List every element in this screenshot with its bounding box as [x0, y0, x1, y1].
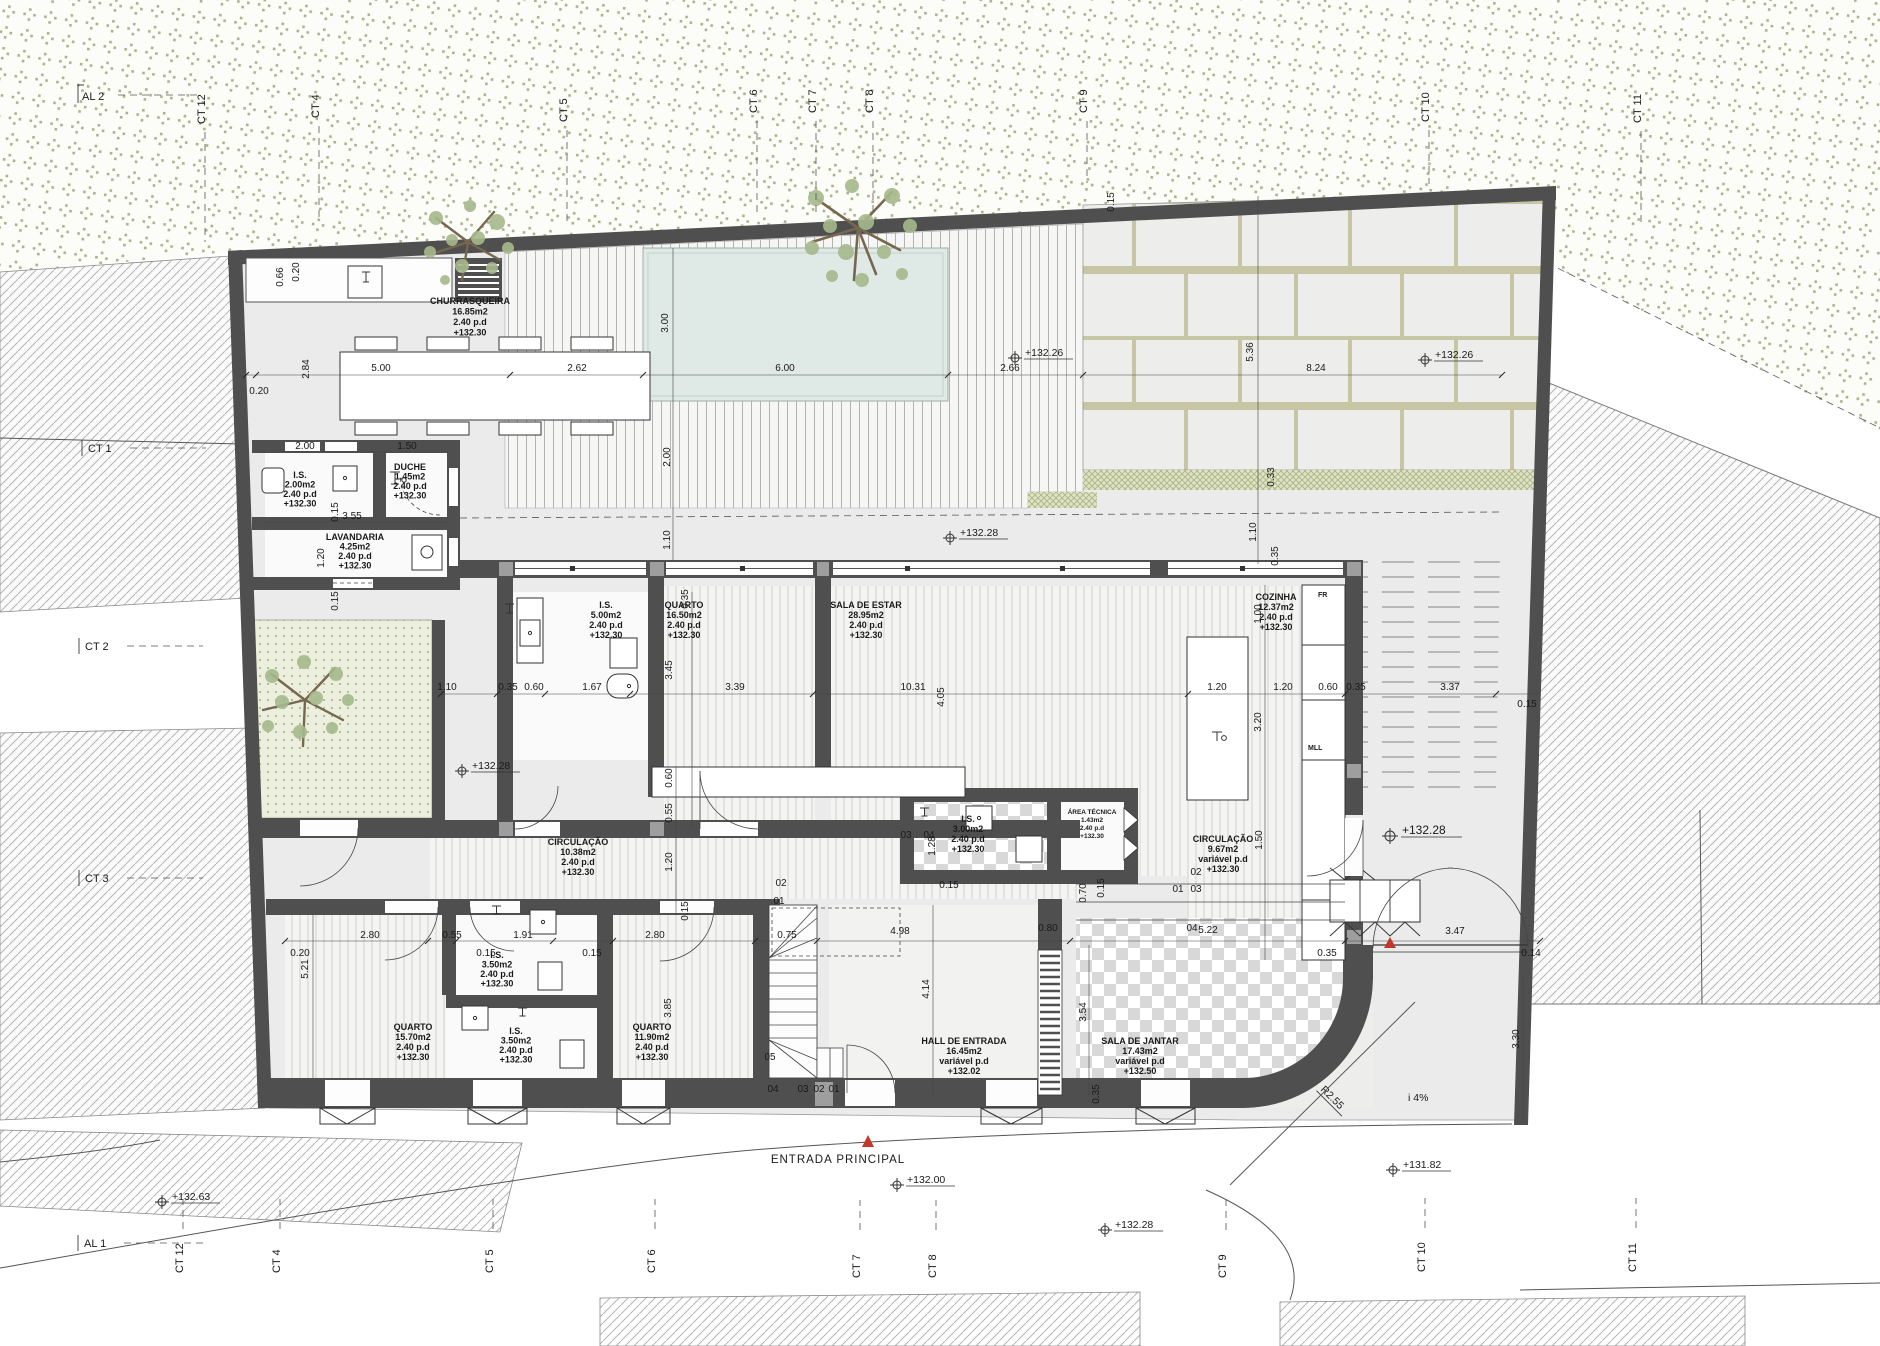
- svg-text:CT 8: CT 8: [864, 89, 876, 113]
- dim-label: 0.66: [275, 267, 286, 287]
- kitchen-island: [1187, 637, 1248, 800]
- step-number: 02: [775, 878, 787, 889]
- sink-icon: [530, 910, 556, 934]
- dim-label: 2.84: [301, 359, 312, 379]
- dim-label: 1.20: [1207, 682, 1227, 693]
- room-label-duche: DUCHE1.45m22.40 p.d+132.30: [393, 462, 427, 501]
- dim-label: 0.20: [290, 948, 310, 959]
- tile-patio: [1083, 193, 1552, 470]
- step-number: 04: [923, 830, 935, 841]
- dim-label: 0.15: [1096, 878, 1107, 898]
- dim-label: 0.80: [1038, 923, 1058, 934]
- neighbor-hatch-bottom-right: [1280, 1296, 1745, 1346]
- dim-label: 1.10: [1248, 522, 1259, 542]
- step-number: 01: [828, 1084, 840, 1095]
- dim-label: 3.37: [1440, 682, 1460, 693]
- dim-label: 0.15: [1106, 192, 1117, 212]
- svg-text:+132.28: +132.28: [1115, 1219, 1153, 1231]
- svg-text:CT 10: CT 10: [1416, 1242, 1428, 1272]
- wc-icon: [560, 1040, 584, 1068]
- svg-text:AL 1: AL 1: [84, 1238, 106, 1250]
- dim-label: 0.35: [1346, 682, 1366, 693]
- wc-icon: [1016, 836, 1042, 862]
- dim-label: 1.50: [397, 441, 417, 452]
- floor-plan-sheet: 0.20 5.00 2.62 6.00 2.66 8.24 0.66 0.20 …: [0, 0, 1880, 1346]
- dim-label: 0.15: [330, 502, 341, 522]
- grass-strip-deck: [1028, 492, 1097, 508]
- room-label-quarto2: QUARTO15.70m22.40 p.d+132.30: [394, 1022, 433, 1062]
- svg-text:+131.82: +131.82: [1403, 1159, 1441, 1171]
- dim-label: 3.85: [663, 998, 674, 1018]
- dim-label: 0.33: [1266, 467, 1277, 487]
- svg-text:CT 5: CT 5: [484, 1249, 496, 1273]
- svg-text:CT 7: CT 7: [807, 89, 819, 113]
- dim-label: 2.80: [645, 930, 665, 941]
- svg-text:CT 3: CT 3: [85, 873, 109, 885]
- svg-text:CT 4: CT 4: [310, 94, 322, 118]
- dim-label: 0.60: [524, 682, 544, 693]
- svg-text:CT 1: CT 1: [88, 443, 112, 455]
- step-number: 02: [1190, 867, 1202, 878]
- sink-icon: [333, 466, 357, 491]
- bathtub-icon: [607, 674, 638, 698]
- dim-label: 1.10: [437, 682, 457, 693]
- svg-text:CT 8: CT 8: [927, 1254, 939, 1278]
- svg-text:CT 12: CT 12: [196, 94, 208, 124]
- wc-icon: [262, 468, 284, 493]
- dim-label: 3.20: [1253, 712, 1264, 732]
- slope-label: i 4%: [1408, 1092, 1428, 1104]
- room-label-quarto3: QUARTO11.90m22.40 p.d+132.30: [633, 1022, 672, 1062]
- built-in-bench: [652, 767, 965, 797]
- step-number: 03: [797, 1084, 809, 1095]
- sink-icon: [462, 1006, 488, 1030]
- dim-label: 0.20: [249, 386, 269, 397]
- entrance-label: ENTRADA PRINCIPAL: [771, 1154, 905, 1166]
- dim-label: 5.22: [1198, 925, 1218, 936]
- svg-text:CT 9: CT 9: [1078, 89, 1090, 113]
- dim-label: 6.00: [775, 363, 795, 374]
- dim-label: 5.36: [1245, 342, 1256, 362]
- dim-label: 0.35: [498, 682, 518, 693]
- wall-top-house: [460, 560, 1363, 578]
- fridge-label: FR: [1318, 592, 1327, 599]
- dim-label: 3.47: [1445, 926, 1465, 937]
- dim-label: 2.80: [360, 930, 380, 941]
- dim-label: 1.50: [1254, 830, 1265, 850]
- dim-label: 1.20: [1273, 682, 1293, 693]
- dim-label: 3.39: [725, 682, 745, 693]
- step-number: 03: [1190, 884, 1202, 895]
- dim-label: 8.24: [1306, 363, 1326, 374]
- dim-label: 0.35: [1317, 948, 1337, 959]
- wc-icon: [610, 638, 637, 668]
- dim-label: 4.14: [921, 979, 932, 999]
- dim-label: 1.91: [513, 930, 533, 941]
- dim-label: 4.98: [890, 926, 910, 937]
- dim-label: 2.00: [662, 447, 673, 467]
- dim-label: 0.15: [680, 901, 691, 921]
- dim-label: 1.20: [316, 548, 327, 568]
- dishwasher-label: MLL: [1308, 745, 1323, 752]
- louver-screen: [1038, 950, 1062, 1095]
- svg-text:CT 5: CT 5: [558, 98, 570, 122]
- dim-label: 0.15: [939, 880, 959, 891]
- dim-label: 4.05: [936, 687, 947, 707]
- svg-text:+132.00: +132.00: [907, 1174, 945, 1186]
- grass-strip-patio: [1083, 470, 1540, 490]
- dim-label: 3.00: [660, 313, 671, 333]
- dim-label: 1.20: [664, 852, 675, 872]
- svg-text:+132.26: +132.26: [1435, 349, 1473, 361]
- dim-label: 5.21: [300, 959, 311, 979]
- neighbor-hatch-bottom-center: [600, 1292, 1140, 1346]
- dim-label: 2.62: [567, 363, 587, 374]
- step-number: 04: [1186, 923, 1198, 934]
- dim-label: 3.30: [1511, 1029, 1522, 1049]
- room-label-cozinha: COZINHA12.37m22.40 p.d+132.30: [1256, 592, 1297, 632]
- svg-text:+132.63: +132.63: [172, 1191, 210, 1203]
- svg-text:CT 7: CT 7: [851, 1254, 863, 1278]
- dim-label: 2.00: [295, 441, 315, 452]
- dim-label: 0.35: [1091, 1084, 1102, 1104]
- svg-text:CT 4: CT 4: [271, 1249, 283, 1273]
- svg-text:CT 10: CT 10: [1420, 92, 1432, 122]
- step-number: 01: [1172, 884, 1184, 895]
- step-number: 05: [764, 1052, 776, 1063]
- dim-label: 0.20: [291, 262, 302, 282]
- svg-text:+132.28: +132.28: [472, 760, 510, 772]
- svg-text:CT 6: CT 6: [748, 89, 760, 113]
- svg-text:CT 6: CT 6: [646, 1249, 658, 1273]
- dim-label: 0.70: [1078, 883, 1089, 903]
- side-ramp-steps: [1363, 554, 1500, 790]
- dim-label: 1.10: [662, 530, 673, 550]
- svg-text:AL 2: AL 2: [82, 91, 104, 103]
- dim-label: 0.55: [664, 803, 675, 823]
- svg-text:+132.28: +132.28: [1402, 823, 1446, 837]
- dim-label: 2.66: [1000, 363, 1020, 374]
- dim-label: 3.45: [664, 660, 675, 680]
- dim-label: 0.55: [442, 930, 462, 941]
- step-number: 02: [813, 1084, 825, 1095]
- dim-label: 3.54: [1078, 1002, 1089, 1022]
- dim-label: 0.35: [1270, 546, 1281, 566]
- dim-label: 0.14: [1521, 948, 1541, 959]
- svg-text:+132.26: +132.26: [1025, 347, 1063, 359]
- step-number: 04: [767, 1084, 779, 1095]
- washer-icon: [412, 535, 442, 570]
- dim-label: 1.67: [582, 682, 602, 693]
- dim-label: 0.60: [664, 768, 675, 788]
- step-number: 01: [773, 896, 785, 907]
- room-label-quarto1: QUARTO16.50m22.40 p.d+132.30: [665, 600, 704, 640]
- dim-label: 0.15: [330, 591, 341, 611]
- floor-plan-drawing: 0.20 5.00 2.62 6.00 2.66 8.24 0.66 0.20 …: [0, 0, 1880, 1346]
- wc-icon: [538, 962, 562, 990]
- svg-text:CT 9: CT 9: [1217, 1254, 1229, 1278]
- svg-text:CT 12: CT 12: [174, 1243, 186, 1273]
- dim-label: 0.15: [582, 948, 602, 959]
- step-number: 03: [900, 830, 912, 841]
- dim-label: 10.31: [900, 682, 925, 693]
- dim-label: 3.55: [342, 511, 362, 522]
- svg-text:CT 11: CT 11: [1632, 94, 1644, 123]
- svg-text:CT 11: CT 11: [1627, 1243, 1639, 1272]
- dining-table-outdoor: [340, 337, 650, 435]
- dim-label: 0.15: [1517, 699, 1537, 710]
- svg-text:+132.28: +132.28: [960, 527, 998, 539]
- dim-label: 5.00: [371, 363, 391, 374]
- dim-label: 0.60: [1318, 682, 1338, 693]
- svg-text:CT 2: CT 2: [85, 641, 109, 653]
- dim-label: 0.75: [777, 930, 797, 941]
